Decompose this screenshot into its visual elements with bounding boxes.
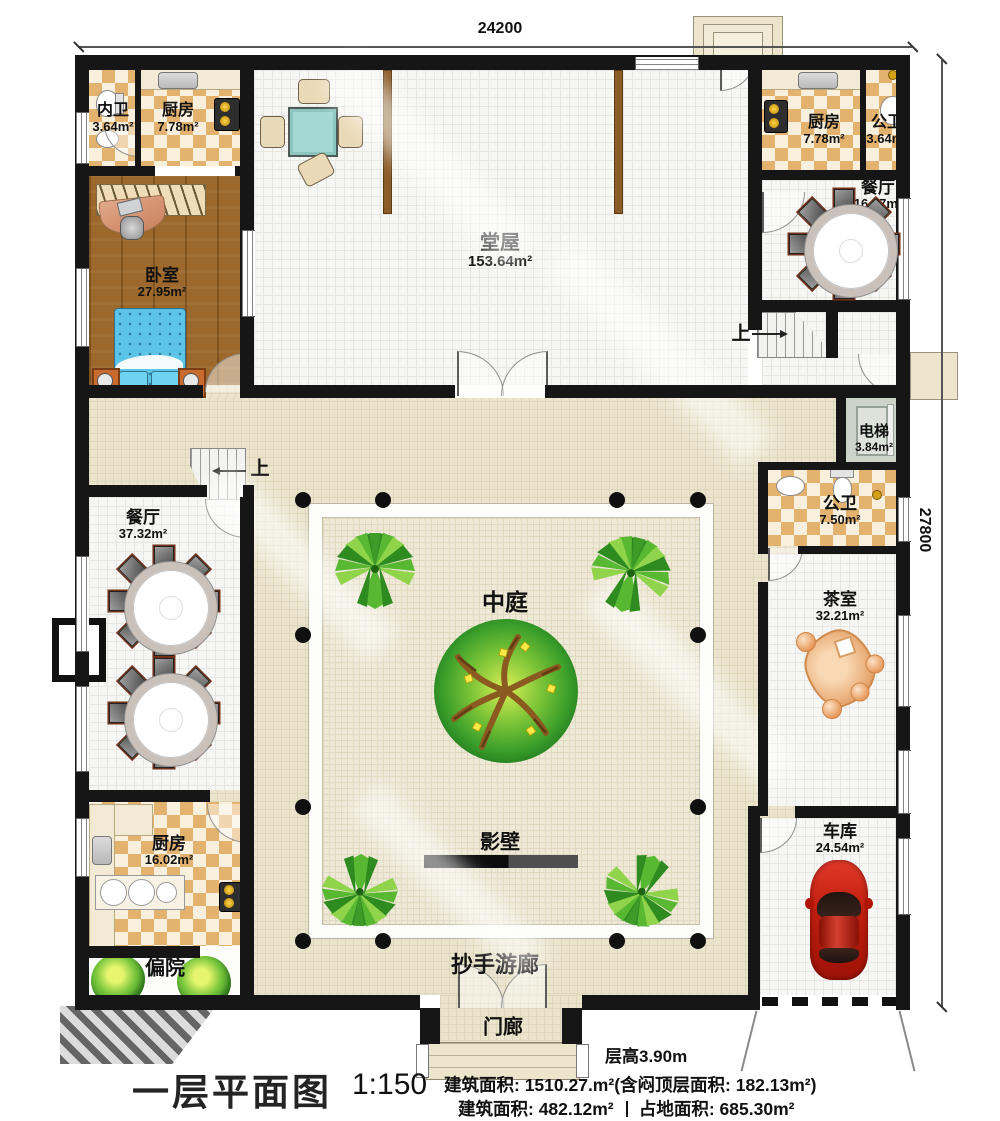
drawing-scale: 1:150 — [352, 1068, 427, 1102]
room-label-kitchen-top-right: 厨房7.78m² — [803, 114, 844, 146]
driveway-edge — [741, 1011, 758, 1072]
wall — [243, 485, 254, 497]
wall — [235, 166, 254, 176]
driveway-edge — [899, 1011, 916, 1072]
wall — [758, 462, 910, 470]
hall-post — [614, 70, 623, 214]
island-bowl — [128, 879, 155, 906]
room-label-elevator: 电梯3.84m² — [855, 424, 893, 454]
floor-height-note: 层高3.90m — [605, 1042, 687, 1067]
window — [898, 497, 911, 542]
corridor-column — [690, 933, 706, 949]
garage-door-dashed — [762, 997, 896, 1006]
fan-plant — [327, 525, 423, 621]
wall — [75, 790, 210, 802]
car — [810, 860, 868, 980]
dimension-top-value: 24200 — [478, 20, 523, 38]
corridor-column — [690, 799, 706, 815]
window — [898, 838, 911, 915]
area-divider — [626, 1101, 628, 1117]
room-label-dining-left: 餐厅37.32m² — [119, 508, 167, 542]
stove-burner — [769, 118, 779, 128]
area-line-2: 建筑面积: 482.12m² 占地面积: 685.30m² — [458, 1096, 794, 1121]
wall — [758, 582, 768, 816]
room-label-inner-bath: 内卫3.64m² — [92, 102, 133, 134]
wall — [240, 497, 254, 1010]
wall — [545, 385, 910, 398]
dimension-line-right — [941, 60, 943, 1008]
car-windshield — [817, 892, 861, 918]
bath-sink — [776, 476, 805, 496]
window — [76, 268, 89, 347]
exterior-step-right — [910, 352, 958, 400]
label-screen-wall: 影壁 — [480, 826, 520, 855]
corridor-column — [295, 492, 311, 508]
stove-burner — [224, 898, 234, 908]
tea-stool — [822, 699, 842, 719]
room-label-kitchen-bottom-left: 厨房16.02m² — [145, 834, 193, 868]
corridor-column — [690, 492, 706, 508]
wall — [582, 995, 760, 1010]
wall — [860, 66, 866, 170]
island-bowl — [156, 882, 177, 903]
tea-stool — [866, 655, 885, 674]
room-label-public-bath-mid: 公卫7.50m² — [819, 494, 860, 528]
page-title: 一层平面图 — [132, 1062, 332, 1116]
wall — [826, 312, 838, 358]
room-label-kitchen-top-left: 厨房7.78m² — [157, 102, 198, 134]
window — [898, 198, 911, 300]
area-line-2b: 占地面积: 685.30m² — [639, 1099, 795, 1119]
wall — [135, 62, 141, 166]
stove-burner — [220, 116, 230, 126]
area-line-1: 建筑面积: 1510.27.m²(含闷顶层面积: 182.13m²) — [444, 1072, 816, 1097]
fan-plant — [582, 529, 678, 625]
fan-plant — [312, 840, 408, 936]
desk-chair — [120, 216, 144, 240]
window — [76, 112, 89, 164]
label-stairs-up-left: 上 — [250, 454, 269, 481]
wall — [758, 470, 768, 554]
car-roof — [819, 916, 859, 948]
kitchen-sink — [798, 72, 838, 89]
stove-burner — [224, 885, 234, 895]
window — [76, 686, 89, 772]
island-bowl — [100, 879, 127, 906]
wall — [748, 818, 760, 1008]
window — [242, 230, 255, 317]
fan-plant — [595, 840, 691, 936]
floor-plan: 内卫3.64m² 厨房7.78m² 卧室27.95m² 堂屋153.64m² 厨… — [0, 0, 1000, 1121]
wall — [75, 485, 207, 497]
dining-table — [805, 205, 897, 297]
dining-table-set — [108, 657, 218, 767]
wall — [75, 166, 155, 176]
wall — [240, 55, 254, 398]
tea-stool — [796, 632, 816, 652]
dining-table — [125, 562, 217, 654]
stairs-right-arrowhead — [780, 330, 788, 338]
wall — [562, 1008, 582, 1044]
wall — [240, 946, 254, 958]
wall — [795, 806, 910, 818]
tea-stool — [851, 683, 870, 702]
window — [635, 57, 699, 70]
stove-burner — [220, 102, 230, 112]
wall — [748, 170, 910, 180]
corridor-column — [295, 799, 311, 815]
corridor-column — [609, 492, 625, 508]
ground-hatch — [60, 1006, 216, 1064]
wall — [75, 385, 203, 398]
hall-table — [288, 107, 338, 157]
car-mirror — [805, 898, 814, 909]
corridor-column — [295, 933, 311, 949]
wall — [75, 55, 910, 70]
corridor-column — [690, 627, 706, 643]
wall — [243, 385, 455, 398]
corridor-column — [295, 627, 311, 643]
kitchen-sink — [92, 836, 112, 865]
window — [898, 750, 911, 814]
wall — [748, 55, 762, 180]
courtyard-tree — [430, 615, 582, 767]
stairs-right-arrow — [752, 333, 782, 335]
dining-table-set — [108, 545, 218, 655]
wall — [75, 946, 200, 958]
room-label-bedroom: 卧室27.95m² — [138, 266, 186, 300]
kitchen-sink — [158, 72, 198, 89]
stove-burner — [769, 104, 779, 114]
dining-table-set — [788, 188, 898, 298]
wall — [798, 546, 910, 554]
wall — [245, 790, 254, 802]
car-mirror — [864, 898, 873, 909]
wall — [748, 300, 910, 312]
wall — [748, 806, 760, 818]
room-label-garage: 车库24.54m² — [816, 822, 864, 856]
label-courtyard: 中庭 — [482, 583, 528, 617]
area-line-2a: 建筑面积: 482.12m² — [458, 1099, 614, 1119]
hall-chair — [260, 116, 285, 148]
wall — [758, 546, 768, 554]
window — [76, 818, 89, 877]
room-label-tea-room: 茶室32.21m² — [816, 590, 864, 624]
corridor-column — [375, 492, 391, 508]
window — [898, 615, 911, 707]
label-porch: 门廊 — [483, 1011, 523, 1040]
pull-lamp — [872, 490, 882, 500]
dimension-line-top — [78, 46, 912, 48]
dimension-right-value: 27800 — [915, 508, 933, 553]
wall — [420, 1008, 440, 1044]
wall — [836, 398, 846, 470]
dining-table — [125, 674, 217, 766]
window — [76, 556, 89, 652]
